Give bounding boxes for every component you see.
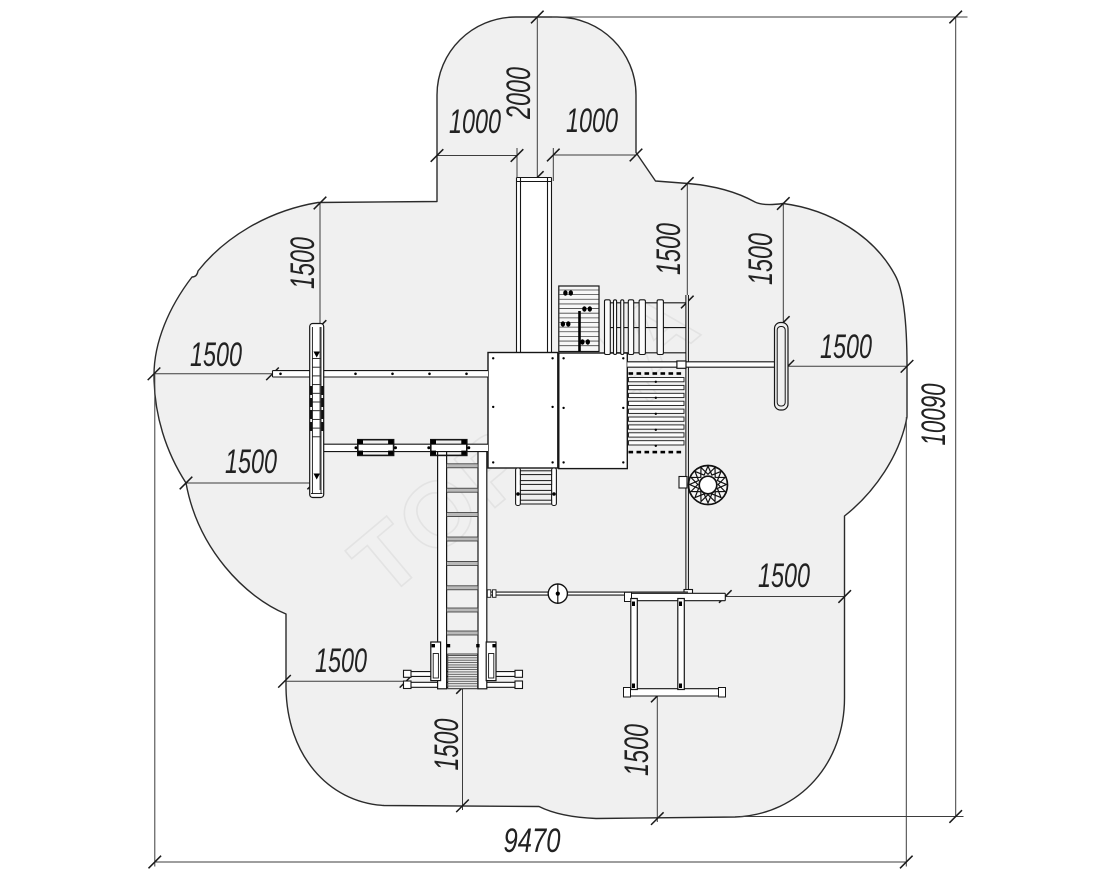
svg-text:2000: 2000 — [500, 67, 538, 120]
svg-text:1500: 1500 — [618, 724, 656, 776]
svg-text:1500: 1500 — [190, 336, 242, 374]
svg-text:1500: 1500 — [225, 443, 277, 481]
svg-text:1000: 1000 — [566, 102, 618, 140]
svg-text:1000: 1000 — [449, 103, 501, 141]
svg-text:1500: 1500 — [650, 223, 688, 275]
svg-text:10090: 10090 — [915, 383, 953, 445]
svg-text:1500: 1500 — [284, 237, 322, 289]
svg-text:9470: 9470 — [504, 822, 561, 860]
svg-text:1500: 1500 — [758, 557, 810, 595]
svg-text:1500: 1500 — [742, 233, 780, 285]
svg-text:1500: 1500 — [820, 328, 872, 366]
svg-text:1500: 1500 — [315, 642, 367, 680]
svg-text:1500: 1500 — [428, 718, 466, 770]
